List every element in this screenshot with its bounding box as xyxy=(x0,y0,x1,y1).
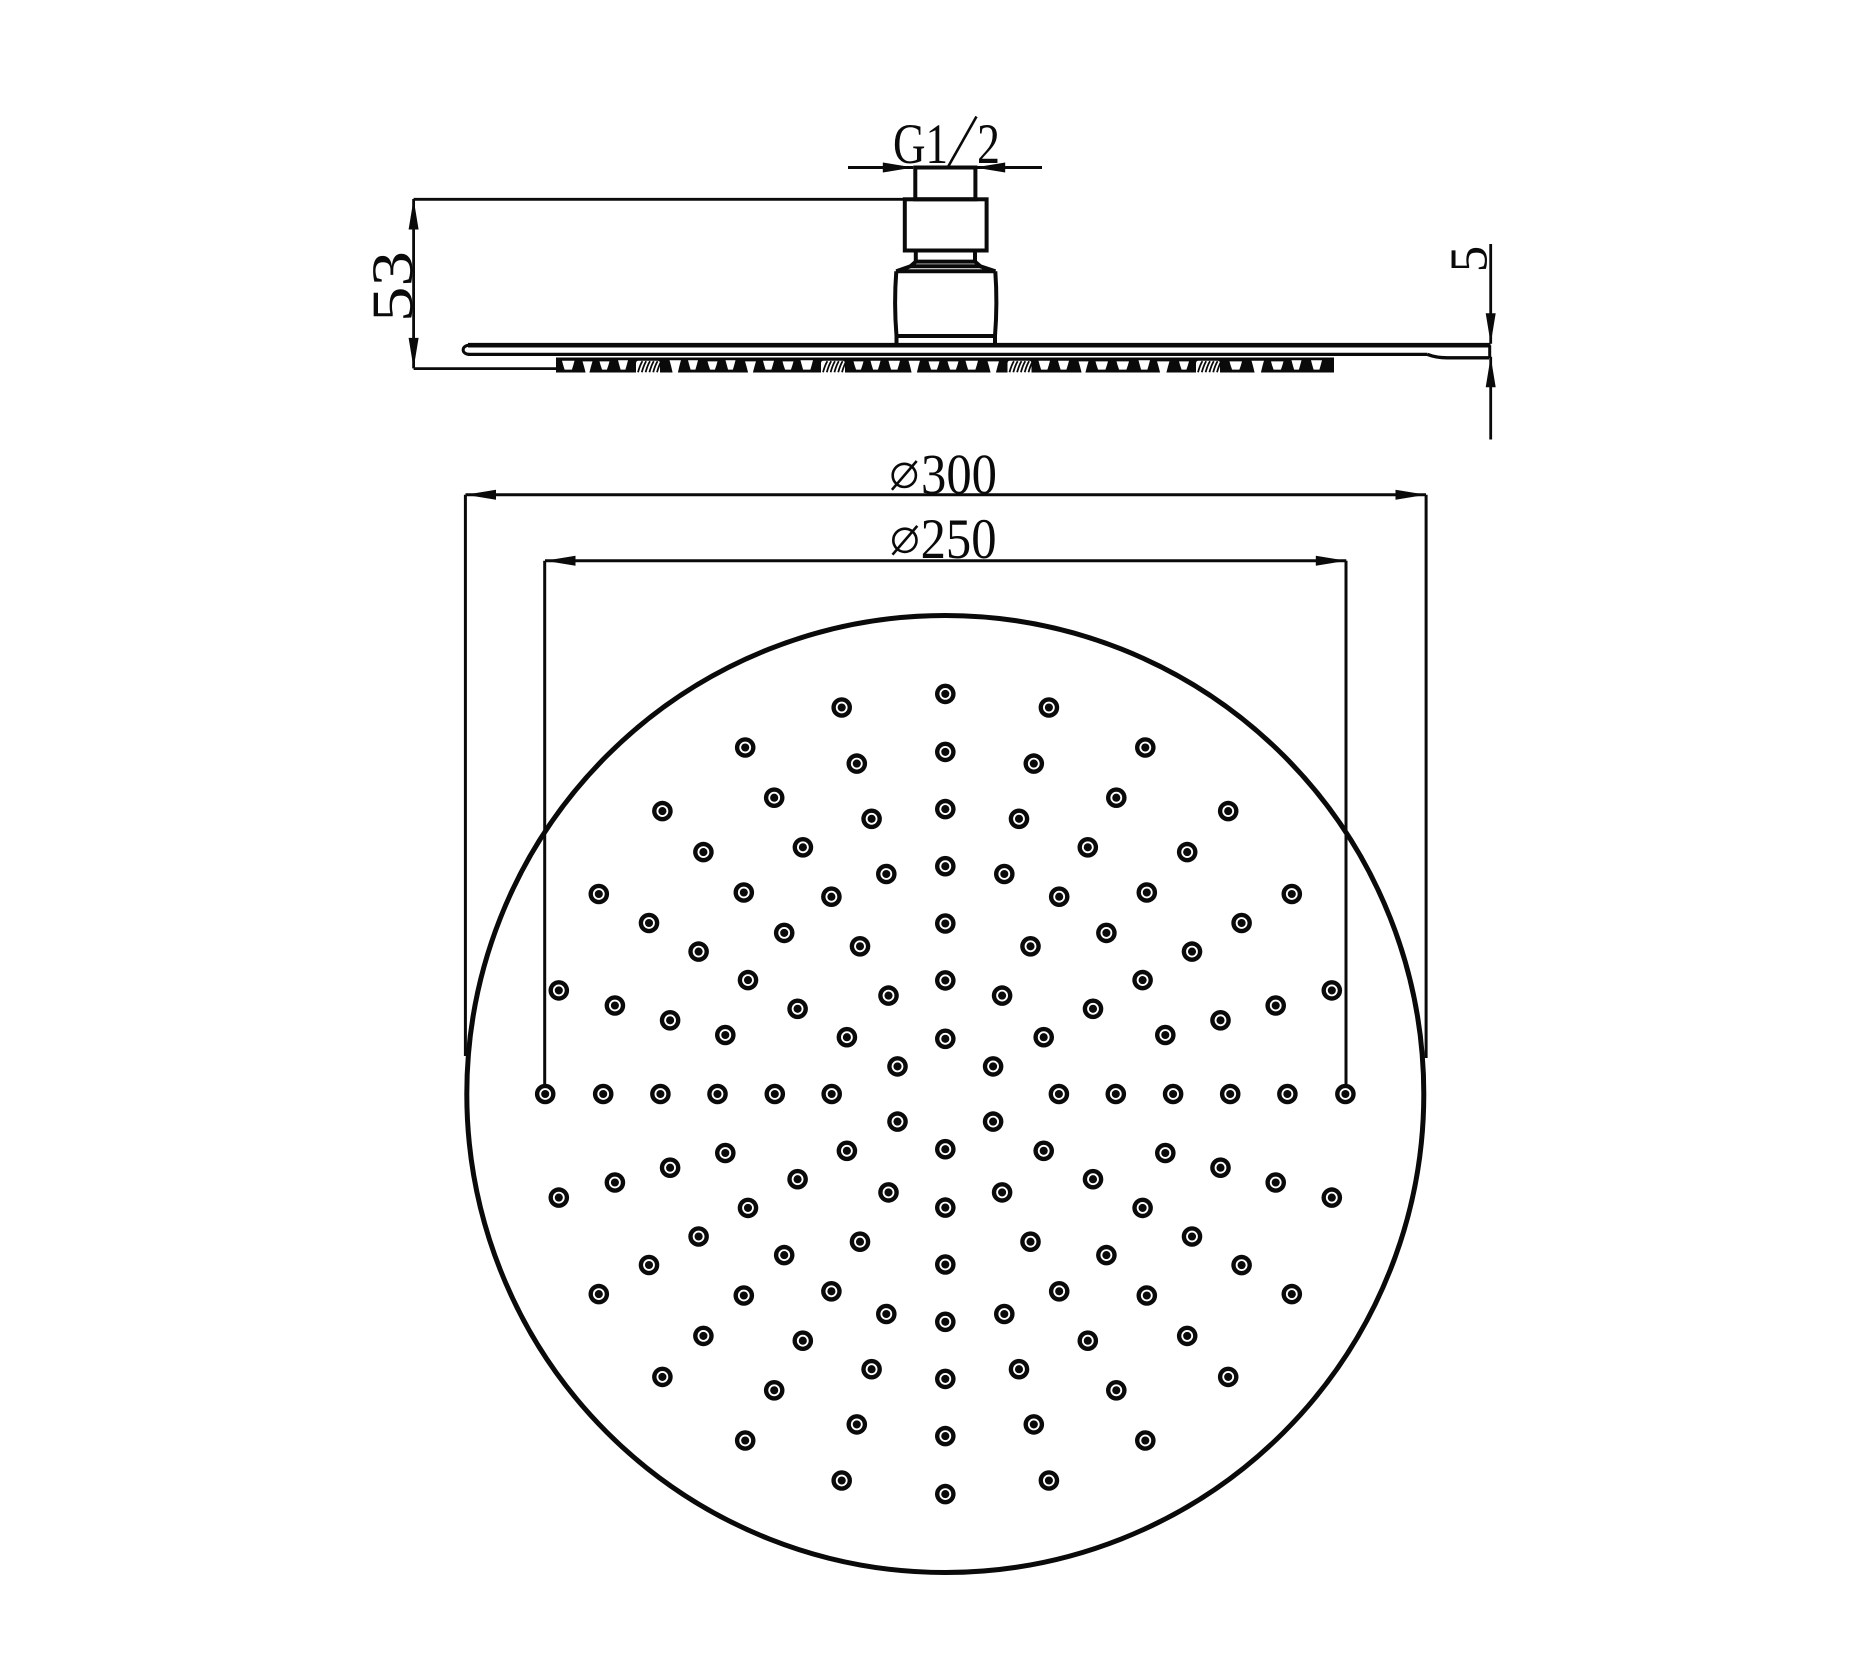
svg-text:300: 300 xyxy=(921,444,997,507)
svg-text:53: 53 xyxy=(360,251,425,322)
svg-text:250: 250 xyxy=(921,508,997,571)
svg-text:5: 5 xyxy=(1440,246,1498,273)
